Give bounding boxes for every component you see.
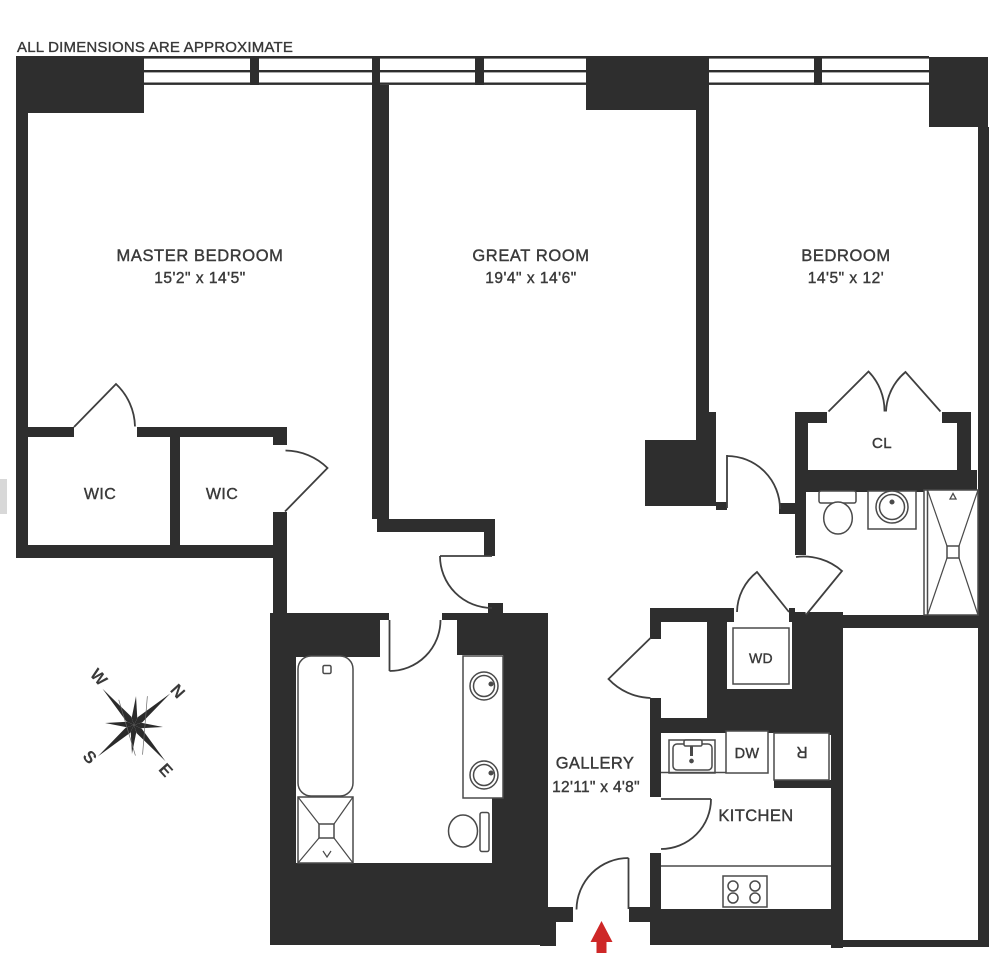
svg-text:R: R (796, 743, 807, 760)
svg-text:GREAT ROOM: GREAT ROOM (472, 247, 589, 265)
svg-text:DW: DW (735, 746, 760, 762)
svg-text:WIC: WIC (84, 486, 116, 503)
svg-text:15'2" x 14'5": 15'2" x 14'5" (154, 270, 246, 287)
svg-text:12'11" x 4'8": 12'11" x 4'8" (552, 779, 640, 796)
svg-text:WD: WD (749, 650, 773, 666)
svg-text:KITCHEN: KITCHEN (718, 807, 793, 825)
svg-text:14'5" x 12': 14'5" x 12' (808, 270, 884, 287)
svg-text:ALL DIMENSIONS ARE APPROXIMATE: ALL DIMENSIONS ARE APPROXIMATE (17, 39, 293, 56)
svg-text:19'4" x 14'6": 19'4" x 14'6" (485, 270, 577, 287)
svg-text:BEDROOM: BEDROOM (801, 247, 890, 265)
svg-text:WIC: WIC (206, 486, 238, 503)
svg-text:GALLERY: GALLERY (556, 755, 635, 773)
svg-text:CL: CL (872, 435, 892, 452)
svg-text:MASTER BEDROOM: MASTER BEDROOM (117, 247, 284, 265)
